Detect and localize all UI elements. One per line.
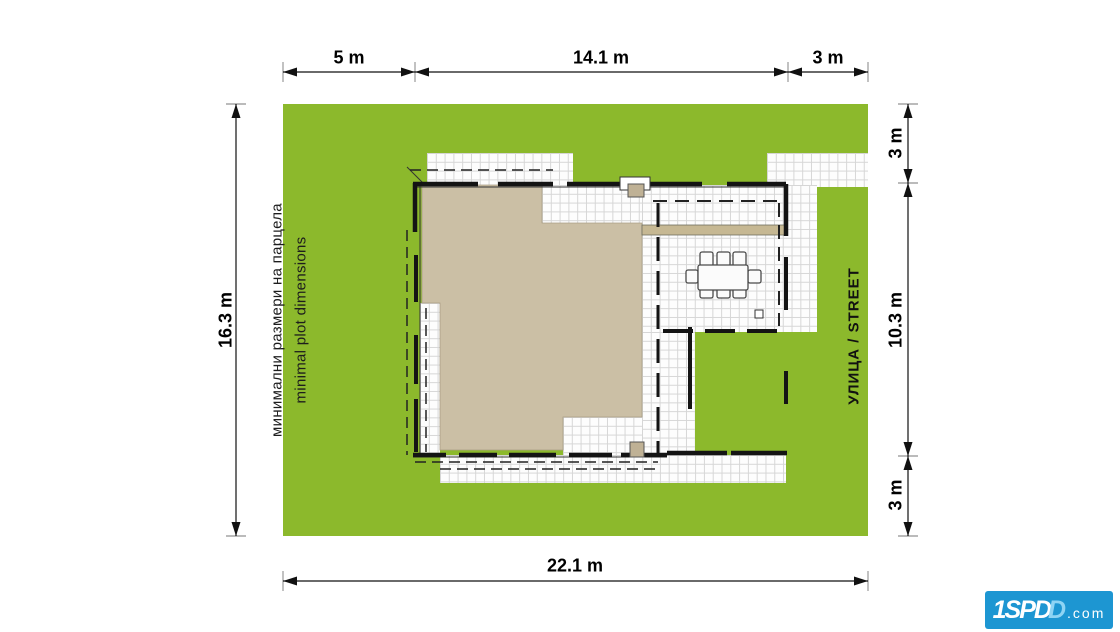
logo-text-main: 1SPD bbox=[993, 598, 1050, 623]
paving-bottom-notch bbox=[563, 417, 642, 455]
dim-left-16-3m: 16.3 m bbox=[216, 292, 237, 348]
paving-terrace bbox=[642, 185, 817, 332]
dim-bottom-22-1m: 22.1 m bbox=[547, 556, 603, 577]
logo-text-d: D bbox=[1048, 598, 1065, 623]
dim-top-5m: 5 m bbox=[333, 48, 364, 69]
paving-bottom-strip bbox=[440, 455, 786, 483]
watermark-logo: 1SPD D .com bbox=[985, 591, 1113, 629]
paving-inner-top bbox=[542, 185, 642, 223]
dim-top-14-1m: 14.1 m bbox=[573, 48, 629, 69]
dim-right-3m-top: 3 m bbox=[886, 127, 907, 158]
dim-right-10-3m: 10.3 m bbox=[886, 292, 907, 348]
paving-top-left bbox=[427, 153, 573, 185]
plot-label-english: minimal plot dimensions bbox=[293, 237, 310, 404]
street-label: УЛИЦА / STREET bbox=[846, 267, 863, 405]
site-plan-canvas: 5 m 14.1 m 3 m 22.1 m 16.3 m 3 m 10.3 m … bbox=[0, 0, 1120, 632]
plot-label-bulgarian: минимални размери на парцела bbox=[269, 203, 286, 437]
paving-right-column bbox=[642, 332, 695, 455]
paving-street-access bbox=[767, 153, 868, 187]
paving-left-notch bbox=[420, 303, 440, 455]
dim-right-3m-bottom: 3 m bbox=[886, 479, 907, 510]
logo-text-suffix: .com bbox=[1067, 605, 1105, 621]
dim-top-3m: 3 m bbox=[812, 48, 843, 69]
